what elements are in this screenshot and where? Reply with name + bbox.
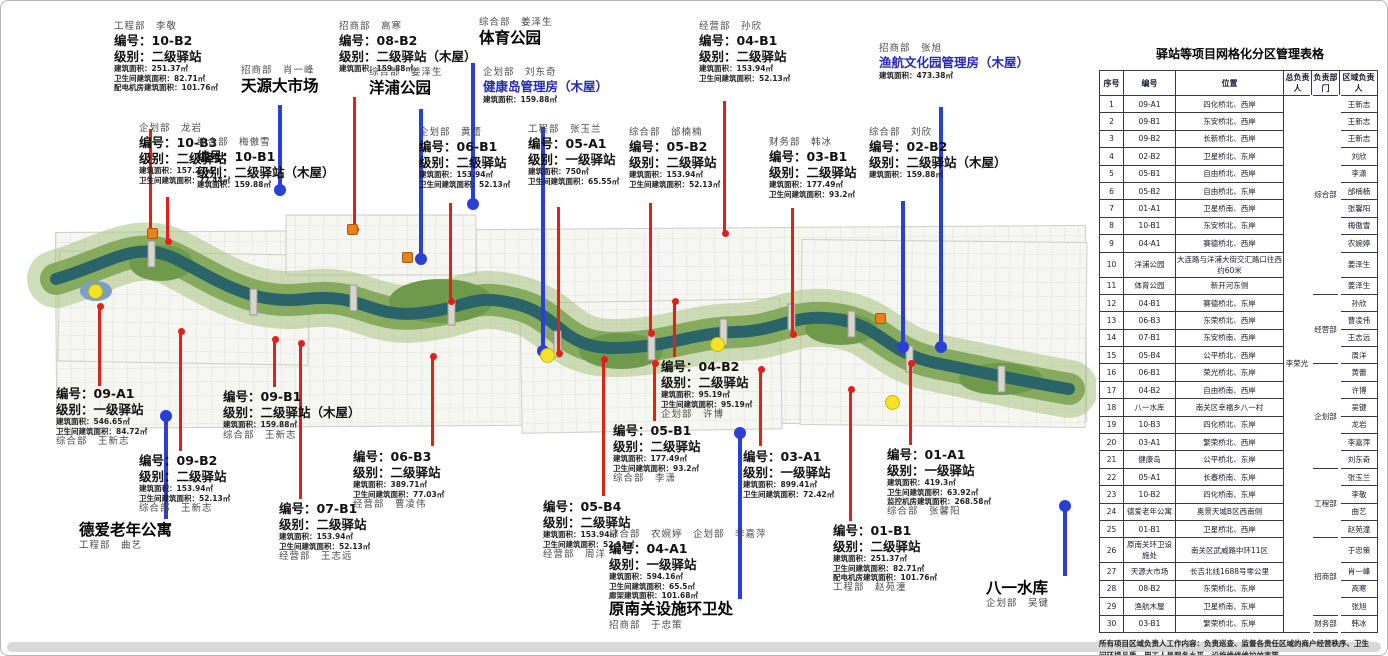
cell-owner: 曲艺 — [1340, 503, 1378, 520]
river-corridor-map: 工程部 李敬编号：10-B2级别：二级驿站建筑面积：251.37㎡卫生间建筑面积… — [1, 1, 1096, 656]
cell-code: 10-B3 — [1124, 416, 1176, 433]
table-row: 26原南关环卫设施处南关区武威路中环11区招商部于忠策 — [1100, 538, 1378, 563]
station-09-B2-sm: 卫生间建筑面积：52.13㎡ — [139, 494, 230, 503]
cell-owner: 肖一峰 — [1340, 563, 1378, 580]
cell-location: 东安桥北、西岸 — [1176, 113, 1284, 130]
table-row: 1204-B1赛德桥北、东岸经营部孙欣 — [1100, 294, 1378, 311]
station-06-B3: 编号：06-B3级别：二级驿站建筑面积：389.71㎡卫生间建筑面积：77.03… — [353, 449, 444, 511]
leader-line-red — [431, 356, 434, 446]
cell-location: 四化桥北、东岸 — [1176, 416, 1284, 433]
cell-index: 24 — [1100, 503, 1124, 520]
cell-location: 四化桥南、东岸 — [1176, 486, 1284, 503]
station-09-A1-sm: 卫生间建筑面积：84.72㎡ — [56, 427, 147, 436]
cell-chief: 李荣光 — [1284, 96, 1312, 633]
cell-location: 四化桥北、西岸 — [1176, 96, 1284, 113]
table-row: 2205-A1长春桥南、东岸工程部张玉兰 — [1100, 468, 1378, 485]
cell-location: 长吉北线1688号零公里 — [1176, 563, 1284, 580]
cell-index: 27 — [1100, 563, 1124, 580]
leader-line-red — [649, 203, 652, 333]
station-01-A1: 编号：01-A1级别：一级驿站建筑面积：419.3㎡卫生间建筑面积：63.92㎡… — [887, 447, 991, 518]
leader-dot — [734, 427, 746, 439]
station-06-B3-dept: 经营部 曹凌伟 — [353, 499, 444, 511]
leader-line-red — [557, 207, 560, 353]
station-01-B1-num: 编号：01-B1 — [833, 523, 937, 539]
cell-code: 10-B2 — [1124, 486, 1176, 503]
station-05-B1-sm: 卫生间建筑面积：93.2㎡ — [613, 464, 701, 473]
cell-index: 14 — [1100, 329, 1124, 346]
station-10-B1-dept: 综合部 梅傲雪 — [197, 137, 335, 149]
cell-code: 02-B2 — [1124, 148, 1176, 165]
cell-index: 9 — [1100, 235, 1124, 252]
table-footnote: 所有项目区域负责人工作内容：负责巡查、监督各责任区域的商户经营秩序、卫生间环境品… — [1099, 638, 1371, 656]
leader-line-red — [166, 197, 169, 241]
leader-dot — [648, 330, 655, 337]
cell-location: 东荣桥北、西岸 — [1176, 312, 1284, 329]
station-02-B2-dept: 综合部 刘欣 — [869, 127, 1007, 139]
station-09-B2-num: 编号：09-B2 — [139, 453, 230, 469]
station-05-B2-sm: 卫生间建筑面积：52.13㎡ — [629, 180, 720, 189]
yellow-circle — [88, 284, 103, 299]
cell-index: 5 — [1100, 165, 1124, 182]
landmark-tianyuan-dept: 招商部 肖一峰 — [241, 65, 319, 77]
cell-code: 05-A1 — [1124, 468, 1176, 485]
cell-index: 10 — [1100, 252, 1124, 277]
cell-location: 繁荣桥北、东岸 — [1176, 615, 1284, 632]
station-06-B3-sm: 卫生间建筑面积：77.03㎡ — [353, 490, 444, 499]
station-03-B1-num: 编号：03-B1 — [769, 149, 857, 165]
station-05-A1-lvl: 级别：一级驿站 — [528, 152, 619, 168]
station-05-B4-lvl: 级别：二级驿站 — [543, 515, 634, 531]
cell-owner: 刘欣 — [1340, 148, 1378, 165]
station-04-B1-num: 编号：04-B1 — [699, 33, 790, 49]
station-05-B2-dept: 综合部 邰楠楠 — [629, 127, 720, 139]
leader-dot — [672, 298, 679, 305]
station-06-B1: 企划部 黄蕾编号：06-B1级别：二级驿站建筑面积：153.94㎡卫生间建筑面积… — [419, 127, 510, 189]
cell-code: 八一水库 — [1124, 399, 1176, 416]
cell-code: 01-B1 — [1124, 520, 1176, 537]
leader-line-red — [653, 363, 656, 421]
cell-location: 东荣桥北、东岸 — [1176, 580, 1284, 597]
cell-owner: 姜泽生 — [1340, 252, 1378, 277]
station-05-B2-sm: 建筑面积：153.94㎡ — [629, 170, 720, 179]
station-06-B3-num: 编号：06-B3 — [353, 449, 444, 465]
cell-owner: 韩冰 — [1340, 615, 1378, 632]
landmark-bayi-reservoir: 八一水库企划部 吴键 — [986, 579, 1049, 610]
landmark-jiankangdao-sm: 建筑面积：159.88㎡ — [483, 95, 608, 104]
station-10-B2-sm: 卫生间建筑面积：82.71㎡ — [114, 74, 218, 83]
yellow-circle — [540, 348, 555, 363]
leader-line-red — [602, 359, 605, 496]
cell-code: 10-B1 — [1124, 217, 1176, 234]
leader-dot — [272, 336, 279, 343]
cell-owner: 张旭 — [1340, 598, 1378, 615]
leader-dot — [298, 340, 305, 347]
cell-owner: 吴键 — [1340, 399, 1378, 416]
leader-line-red — [353, 97, 356, 229]
cell-index: 17 — [1100, 381, 1124, 398]
leader-dot — [165, 238, 172, 245]
station-04-B2-num: 编号：04-B2 — [661, 359, 752, 375]
orange-marker — [147, 228, 158, 239]
cell-index: 30 — [1100, 615, 1124, 632]
station-09-B2: 编号：09-B2级别：二级驿站建筑面积：153.94㎡卫生间建筑面积：52.13… — [139, 453, 230, 515]
cell-owner: 高寒 — [1340, 580, 1378, 597]
leader-dot — [467, 198, 479, 210]
cell-code: 04-B2 — [1124, 381, 1176, 398]
station-04-B2-dept: 企划部 许博 — [661, 409, 752, 421]
cell-code: 天源大市场 — [1124, 563, 1176, 580]
landmark-bayi-reservoir-dept: 企划部 吴键 — [986, 598, 1049, 610]
station-04-A1-num: 编号：04-A1 — [609, 541, 767, 557]
station-10-B2-sm: 配电机房建筑面积：101.76㎡ — [114, 83, 218, 92]
station-10-B3-dept: 企划部 龙岩 — [139, 123, 230, 135]
cell-index: 2 — [1100, 113, 1124, 130]
cell-owner: 周洋 — [1340, 347, 1378, 364]
station-05-B4-num: 编号：05-B4 — [543, 499, 634, 515]
leader-dot — [178, 328, 185, 335]
landmark-tianyuan-big: 天源大市场 — [241, 77, 319, 96]
cell-owner: 李嘉萍 — [1340, 434, 1378, 451]
cell-index: 28 — [1100, 580, 1124, 597]
landmark-tiyu-park-big: 体育公园 — [479, 29, 553, 48]
station-05-B1-dept: 综合部 李潇 — [613, 473, 701, 485]
leader-dot — [601, 356, 608, 363]
station-05-B2: 综合部 邰楠楠编号：05-B2级别：二级驿站建筑面积：153.94㎡卫生间建筑面… — [629, 127, 720, 189]
cell-code: 03-A1 — [1124, 434, 1176, 451]
landmark-yuhang-sm: 建筑面积：473.38㎡ — [879, 71, 1029, 80]
cell-location: 大连路与洋浦大街交汇路口往西约60米 — [1176, 252, 1284, 277]
station-03-A1: 编号：03-A1级别：一级驿站建筑面积：899.41㎡卫生间建筑面积：72.42… — [743, 449, 834, 499]
cell-owner: 赵苑潼 — [1340, 520, 1378, 537]
station-10-B1-lvl: 级别：二级驿站（木屋） — [197, 165, 335, 181]
cell-owner: 王新志 — [1340, 96, 1378, 113]
cell-index: 13 — [1100, 312, 1124, 329]
station-09-A1-dept: 综合部 王新志 — [56, 436, 147, 448]
landmark-deai-dept: 工程部 曲艺 — [79, 540, 172, 552]
orange-marker — [402, 252, 413, 263]
landmark-deai: 德爱老年公寓工程部 曲艺 — [79, 521, 172, 552]
station-09-B1-lvl: 级别：二级驿站（木屋） — [223, 405, 361, 421]
cell-owner: 刘东奇 — [1340, 451, 1378, 468]
station-09-B1-num: 编号：09-B1 — [223, 389, 361, 405]
station-06-B1-sm: 卫生间建筑面积：52.13㎡ — [419, 180, 510, 189]
station-05-B1-sm: 建筑面积：177.49㎡ — [613, 454, 701, 463]
leader-dot — [908, 360, 915, 367]
station-04-B2: 编号：04-B2级别：二级驿站建筑面积：95.19㎡卫生间建筑面积：95.19㎡… — [661, 359, 752, 421]
station-01-B1-sm: 建筑面积：251.37㎡ — [833, 554, 937, 563]
station-03-B1-lvl: 级别：二级驿站 — [769, 165, 857, 181]
cell-code: 洋浦公园 — [1124, 252, 1176, 277]
leader-dot — [1059, 500, 1071, 512]
station-09-A1: 编号：09-A1级别：一级驿站建筑面积：546.65㎡卫生间建筑面积：84.72… — [56, 386, 147, 448]
cell-code: 09-B1 — [1124, 113, 1176, 130]
cell-owner: 农婉婷 — [1340, 235, 1378, 252]
cell-code: 09-B2 — [1124, 130, 1176, 147]
leader-dot — [430, 353, 437, 360]
leader-line-red — [673, 301, 676, 357]
station-09-B1-dept: 综合部 王新志 — [223, 430, 361, 442]
station-05-B2-num: 编号：05-B2 — [629, 139, 720, 155]
cell-index: 12 — [1100, 294, 1124, 311]
cell-owner: 姜泽生 — [1340, 277, 1378, 294]
cell-code: 06-B3 — [1124, 312, 1176, 329]
column-header: 编号 — [1124, 71, 1176, 96]
station-01-B1-sm: 配电机房建筑面积：101.76㎡ — [833, 573, 937, 582]
station-05-A1-sm: 卫生间建筑面积：65.55㎡ — [528, 177, 619, 186]
landmark-jiankangdao: 企划部 刘东奇健康岛管理房（木屋）建筑面积：159.88㎡ — [483, 67, 608, 104]
station-04-B1-sm: 卫生间建筑面积：52.13㎡ — [699, 74, 790, 83]
table-row: 1606-B1荣光桥北、东岸企划部黄蕾 — [1100, 364, 1378, 381]
screenshot-root: 工程部 李敬编号：10-B2级别：二级驿站建筑面积：251.37㎡卫生间建筑面积… — [0, 0, 1388, 656]
leader-dot — [848, 386, 855, 393]
landmark-yangpu-park-dept: 综合部 姜泽生 — [369, 67, 443, 79]
cell-code: 03-B1 — [1124, 615, 1176, 632]
cell-location: 南关区幸福乡八一村 — [1176, 399, 1284, 416]
leader-line-red — [849, 389, 852, 521]
station-10-B1-sm: 建筑面积：159.88㎡ — [197, 180, 335, 189]
yellow-circle — [710, 337, 725, 352]
leader-line-red — [98, 306, 101, 386]
leader-dot — [758, 366, 765, 373]
station-01-B1-sm: 卫生间建筑面积：82.71㎡ — [833, 564, 937, 573]
cell-index: 25 — [1100, 520, 1124, 537]
landmark-yangpu-park-big: 洋浦公园 — [369, 79, 443, 98]
column-header: 总负责人 — [1284, 71, 1312, 96]
station-08-B2-lvl: 级别：二级驿站（木屋） — [339, 49, 477, 65]
leader-line-red — [791, 208, 794, 334]
cell-location: 新开河东侧 — [1176, 277, 1284, 294]
leader-dot — [97, 303, 104, 310]
cell-index: 19 — [1100, 416, 1124, 433]
station-08-B2-num: 编号：08-B2 — [339, 33, 477, 49]
column-header: 位置 — [1176, 71, 1284, 96]
cell-code: 04-B1 — [1124, 294, 1176, 311]
station-01-B1-dept: 工程部 赵苑潼 — [833, 582, 937, 594]
leader-line-red — [759, 369, 762, 446]
landmark-yuhang-bluebig: 渔航文化园管理房（木屋） — [879, 55, 1029, 71]
landmark-jiankangdao-bluebig: 健康岛管理房（木屋） — [483, 79, 608, 95]
station-04-B1: 经营部 孙欣编号：04-B1级别：二级驿站建筑面积：153.94㎡卫生间建筑面积… — [699, 21, 790, 83]
station-03-B1-dept: 财务部 韩冰 — [769, 137, 857, 149]
station-04-B1-dept: 经营部 孙欣 — [699, 21, 790, 33]
station-08-B2: 招商部 高寒编号：08-B2级别：二级驿站（木屋）建筑面积：159.88㎡ — [339, 21, 477, 74]
cell-index: 21 — [1100, 451, 1124, 468]
station-09-A1-num: 编号：09-A1 — [56, 386, 147, 402]
leader-line-red — [449, 203, 452, 301]
landmark-yangpu-park: 综合部 姜泽生洋浦公园 — [369, 67, 443, 98]
cell-location: 奥景天城B区西南侧 — [1176, 503, 1284, 520]
cell-index: 18 — [1100, 399, 1124, 416]
cell-code: 06-B1 — [1124, 364, 1176, 381]
station-02-B2-sm: 建筑面积：159.88㎡ — [869, 170, 1007, 179]
station-04-B2-lvl: 级别：二级驿站 — [661, 375, 752, 391]
cell-index: 1 — [1100, 96, 1124, 113]
cell-code: 08-B2 — [1124, 580, 1176, 597]
station-03-A1-sm: 建筑面积：899.41㎡ — [743, 480, 834, 489]
station-09-B2-lvl: 级别：二级驿站 — [139, 469, 230, 485]
station-03-A1-lvl: 级别：一级驿站 — [743, 465, 834, 481]
station-03-A1-num: 编号：03-A1 — [743, 449, 834, 465]
station-07-B1-dept: 经营部 王志远 — [279, 551, 370, 563]
yellow-circle — [885, 395, 900, 410]
cell-department: 财务部 — [1312, 615, 1340, 632]
cell-code: 05-B2 — [1124, 182, 1176, 199]
cell-code: 渔航木屋 — [1124, 598, 1176, 615]
cell-department: 工程部 — [1312, 468, 1340, 538]
cell-owner: 李敬 — [1340, 486, 1378, 503]
cell-owner: 邰楠楠 — [1340, 182, 1378, 199]
leader-dot — [790, 331, 797, 338]
leader-line-red — [179, 331, 182, 451]
orange-marker — [875, 313, 886, 324]
station-05-A1-num: 编号：05-A1 — [528, 136, 619, 152]
station-10-B2-sm: 建筑面积：251.37㎡ — [114, 64, 218, 73]
cell-owner: 许博 — [1340, 381, 1378, 398]
station-02-B2-lvl: 级别：二级驿站（木屋） — [869, 155, 1007, 171]
station-03-A1-sm: 卫生间建筑面积：72.42㎡ — [743, 490, 834, 499]
station-07-B1-lvl: 级别：二级驿站 — [279, 517, 370, 533]
cell-location: 卫星桥南、西岸 — [1176, 200, 1284, 217]
column-header: 序号 — [1100, 71, 1124, 96]
station-table-body: 109-A1四化桥北、西岸李荣光综合部王新志209-B1东安桥北、西岸王新志30… — [1100, 96, 1378, 633]
station-02-B2: 综合部 刘欣编号：02-B2级别：二级驿站（木屋）建筑面积：159.88㎡ — [869, 127, 1007, 180]
cell-index: 16 — [1100, 364, 1124, 381]
cell-index: 3 — [1100, 130, 1124, 147]
cell-location: 卫星桥北、西岸 — [1176, 520, 1284, 537]
cell-location: 自由桥南、西岸 — [1176, 381, 1284, 398]
cell-index: 20 — [1100, 434, 1124, 451]
station-04-A1-sm: 卫生间建筑面积：65.5㎡ — [609, 582, 767, 591]
cell-location: 南关区武威路中环11区 — [1176, 538, 1284, 563]
cell-index: 26 — [1100, 538, 1124, 563]
cell-code: 体育公园 — [1124, 277, 1176, 294]
cell-location: 自由桥北、东岸 — [1176, 182, 1284, 199]
cell-code: 05-B4 — [1124, 347, 1176, 364]
station-10-B2-lvl: 级别：二级驿站 — [114, 49, 218, 65]
cell-owner: 梅傲雪 — [1340, 217, 1378, 234]
column-header: 区域负责人 — [1340, 71, 1378, 96]
station-05-A1: 工程部 张玉兰编号：05-A1级别：一级驿站建筑面积：750㎡卫生间建筑面积：6… — [528, 124, 619, 186]
station-09-B1: 编号：09-B1级别：二级驿站（木屋）建筑面积：159.88㎡综合部 王新志 — [223, 389, 361, 442]
cell-owner: 张玉兰 — [1340, 468, 1378, 485]
cell-location: 荣光桥北、东岸 — [1176, 364, 1284, 381]
station-04-A1-big: 原南关设施环卫处 — [609, 600, 767, 619]
cell-index: 4 — [1100, 148, 1124, 165]
cell-location: 赛德桥北、东岸 — [1176, 294, 1284, 311]
leader-dot — [897, 341, 909, 353]
station-04-A1-lvl: 级别：一级驿站 — [609, 557, 767, 573]
landmark-jiankangdao-dept: 企划部 刘东奇 — [483, 67, 608, 79]
cell-index: 7 — [1100, 200, 1124, 217]
station-10-B2-num: 编号：10-B2 — [114, 33, 218, 49]
leader-line-red — [909, 363, 912, 445]
station-04-B1-sm: 建筑面积：153.94㎡ — [699, 64, 790, 73]
cell-location: 东安桥南、西岸 — [1176, 329, 1284, 346]
station-01-A1-sm: 监控机房建筑面积：268.58㎡ — [887, 497, 991, 506]
station-01-A1-lvl: 级别：一级驿站 — [887, 463, 991, 479]
cell-index: 15 — [1100, 347, 1124, 364]
cell-index: 29 — [1100, 598, 1124, 615]
leader-dot — [415, 253, 427, 265]
cell-owner: 李潇 — [1340, 165, 1378, 182]
leader-dot — [652, 360, 659, 367]
station-01-A1-sm: 建筑面积：419.3㎡ — [887, 478, 991, 487]
station-03-B1-sm: 卫生间建筑面积：93.2㎡ — [769, 190, 857, 199]
station-04-A1: 综合部 农婉婷 企划部 李嘉萍编号：04-A1级别：一级驿站建筑面积：594.1… — [609, 529, 767, 632]
landmark-deai-big: 德爱老年公寓 — [79, 521, 172, 540]
station-04-A1-dept: 招商部 于忠策 — [609, 620, 767, 632]
cell-owner: 曹凌伟 — [1340, 312, 1378, 329]
station-03-B1: 财务部 韩冰编号：03-B1级别：二级驿站建筑面积：177.49㎡卫生间建筑面积… — [769, 137, 857, 199]
cell-index: 8 — [1100, 217, 1124, 234]
station-04-B2-sm: 建筑面积：95.19㎡ — [661, 390, 752, 399]
station-01-B1: 编号：01-B1级别：二级驿站建筑面积：251.37㎡卫生间建筑面积：82.71… — [833, 523, 937, 594]
leader-dot — [935, 341, 947, 353]
cell-code: 原南关环卫设施处 — [1124, 538, 1176, 563]
landmark-tiyu-park: 综合部 姜泽生体育公园 — [479, 17, 553, 48]
cell-code: 09-A1 — [1124, 96, 1176, 113]
leader-line-red — [723, 101, 726, 233]
station-04-A1-sm: 建筑面积：594.16㎡ — [609, 572, 767, 581]
landmark-yuhang: 招商部 张旭渔航文化园管理房（木屋）建筑面积：473.38㎡ — [879, 43, 1029, 80]
management-table-panel: 驿站等项目网格化分区管理表格 序号编号位置总负责人负责部门区域负责人 109-A… — [1099, 45, 1381, 656]
leader-dot — [722, 230, 729, 237]
station-05-A1-sm: 建筑面积：750㎡ — [528, 167, 619, 176]
cell-index: 11 — [1100, 277, 1124, 294]
leader-dot — [556, 350, 563, 357]
station-06-B1-dept: 企划部 黄蕾 — [419, 127, 510, 139]
table-row: 3003-B1繁荣桥北、东岸财务部韩冰 — [1100, 615, 1378, 632]
station-04-A1-sm: 廊架建筑面积：101.68㎡ — [609, 591, 767, 600]
cell-location: 卫星桥南、东岸 — [1176, 598, 1284, 615]
station-09-A1-sm: 建筑面积：546.65㎡ — [56, 417, 147, 426]
cell-location: 东安桥北、东岸 — [1176, 217, 1284, 234]
station-03-B1-sm: 建筑面积：177.49㎡ — [769, 180, 857, 189]
table-row: 109-A1四化桥北、西岸李荣光综合部王新志 — [1100, 96, 1378, 113]
cell-location: 赛德桥北、西岸 — [1176, 235, 1284, 252]
cell-index: 23 — [1100, 486, 1124, 503]
column-header: 负责部门 — [1312, 71, 1340, 96]
landmark-tianyuan: 招商部 肖一峰天源大市场 — [241, 65, 319, 96]
station-06-B3-lvl: 级别：二级驿站 — [353, 465, 444, 481]
station-10-B2-dept: 工程部 李敬 — [114, 21, 218, 33]
station-04-B2-sm: 卫生间建筑面积：95.19㎡ — [661, 400, 752, 409]
cell-index: 22 — [1100, 468, 1124, 485]
station-04-A1-dept: 综合部 农婉婷 企划部 李嘉萍 — [609, 529, 767, 541]
cell-owner: 于忠策 — [1340, 538, 1378, 563]
cell-department: 综合部 — [1312, 96, 1340, 295]
cell-code: 01-A1 — [1124, 200, 1176, 217]
landmark-yuhang-dept: 招商部 张旭 — [879, 43, 1029, 55]
cell-location: 卫星桥北、东岸 — [1176, 148, 1284, 165]
cell-owner: 孙欣 — [1340, 294, 1378, 311]
station-06-B1-num: 编号：06-B1 — [419, 139, 510, 155]
station-01-A1-dept: 综合部 张馨阳 — [887, 506, 991, 518]
station-05-B2-lvl: 级别：二级驿站 — [629, 155, 720, 171]
station-10-B1-num: 编号：10-B1 — [197, 149, 335, 165]
cell-location: 公平桥北、东岸 — [1176, 451, 1284, 468]
leader-line-red — [273, 339, 276, 387]
station-02-B2-num: 编号：02-B2 — [869, 139, 1007, 155]
cell-department: 企划部 — [1312, 364, 1340, 468]
station-05-B1-num: 编号：05-B1 — [613, 423, 701, 439]
orange-marker — [347, 224, 358, 235]
station-04-B1-lvl: 级别：二级驿站 — [699, 49, 790, 65]
cell-owner: 王新志 — [1340, 113, 1378, 130]
leader-dot — [448, 298, 455, 305]
table-header-row: 序号编号位置总负责人负责部门区域负责人 — [1100, 71, 1378, 96]
station-06-B3-sm: 建筑面积：389.71㎡ — [353, 480, 444, 489]
